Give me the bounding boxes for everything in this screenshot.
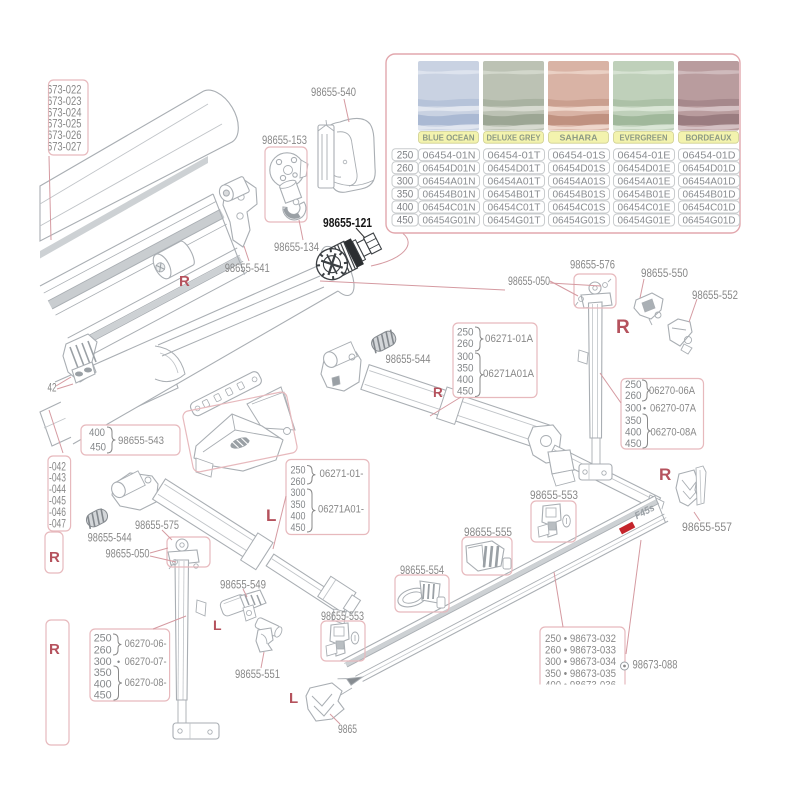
svg-text:450: 450	[457, 386, 474, 398]
svg-text:300 • 98673-034: 300 • 98673-034	[545, 656, 616, 668]
svg-text:260: 260	[397, 162, 414, 174]
svg-text:R: R	[49, 641, 60, 658]
svg-text:98655-550: 98655-550	[641, 266, 688, 280]
svg-text:06271-01-: 06271-01-	[320, 468, 364, 480]
svg-text:98655-553: 98655-553	[530, 488, 578, 502]
svg-text:06454G01E: 06454G01E	[618, 215, 671, 227]
svg-text:06454D01S: 06454D01S	[553, 162, 606, 174]
svg-text:06454D01D: 06454D01D	[683, 162, 736, 174]
svg-text:350: 350	[291, 499, 306, 511]
svg-text:-047: -047	[49, 516, 66, 530]
svg-text:EVERGREEN: EVERGREEN	[620, 133, 668, 143]
svg-text:BORDEAUX: BORDEAUX	[686, 133, 732, 143]
svg-text:98655-543: 98655-543	[118, 435, 164, 447]
svg-text:350: 350	[397, 189, 414, 201]
svg-text:98655-557: 98655-557	[682, 520, 732, 534]
svg-text:R: R	[433, 385, 443, 400]
svg-text:250: 250	[397, 149, 414, 161]
svg-text:260: 260	[291, 476, 306, 488]
svg-text:06454B01T: 06454B01T	[488, 189, 542, 201]
svg-text:98655-553: 98655-553	[321, 609, 364, 623]
svg-text:06454G01N: 06454G01N	[423, 215, 476, 227]
svg-text:•: •	[643, 404, 646, 414]
svg-text:350: 350	[625, 415, 642, 427]
svg-text:450: 450	[90, 442, 106, 454]
svg-text:06454-01N: 06454-01N	[423, 149, 476, 161]
svg-text:98655-050: 98655-050	[106, 547, 150, 561]
svg-text:06454G01S: 06454G01S	[553, 215, 606, 227]
svg-text:98655-549: 98655-549	[220, 578, 266, 592]
svg-text:06454B01N: 06454B01N	[423, 189, 476, 201]
svg-text:350: 350	[94, 667, 112, 679]
svg-text:06454C01T: 06454C01T	[488, 202, 542, 214]
svg-text:350: 350	[457, 363, 474, 375]
svg-text:06270-08-: 06270-08-	[125, 677, 167, 689]
svg-text:06271A01-: 06271A01-	[318, 504, 364, 516]
svg-text:SAHARA: SAHARA	[560, 133, 598, 143]
svg-text:300: 300	[291, 487, 306, 499]
svg-text:98655-575: 98655-575	[135, 518, 179, 532]
svg-text:R: R	[616, 317, 630, 338]
svg-text:450: 450	[94, 690, 112, 702]
svg-text:260: 260	[457, 338, 474, 350]
svg-text:98655-121: 98655-121	[323, 215, 372, 230]
svg-text:450: 450	[397, 215, 414, 227]
svg-text:42: 42	[48, 381, 57, 395]
svg-text:400: 400	[291, 511, 306, 523]
svg-text:06270-07-: 06270-07-	[125, 656, 167, 668]
svg-text:260: 260	[625, 390, 642, 402]
svg-text:9865: 9865	[338, 722, 357, 736]
svg-text:450: 450	[291, 522, 306, 534]
svg-text:06270-06-: 06270-06-	[125, 638, 167, 650]
svg-text:300: 300	[625, 403, 642, 415]
svg-text:350 • 98673-035: 350 • 98673-035	[545, 668, 616, 680]
svg-text:R: R	[179, 273, 190, 290]
svg-text:250: 250	[457, 327, 474, 339]
svg-text:06454A01T: 06454A01T	[488, 176, 542, 188]
svg-text:250: 250	[291, 465, 306, 477]
svg-text:06454B01D: 06454B01D	[683, 189, 736, 201]
svg-text:06454C01N: 06454C01N	[423, 202, 476, 214]
svg-text:06454G01T: 06454G01T	[488, 215, 542, 227]
svg-text:L: L	[213, 617, 222, 633]
svg-text:•: •	[117, 657, 120, 667]
svg-text:98673-088: 98673-088	[633, 658, 678, 672]
svg-text:06271A01A: 06271A01A	[483, 368, 535, 380]
svg-text:400: 400	[457, 374, 474, 386]
svg-text:06454-01S: 06454-01S	[553, 149, 606, 161]
svg-text:06454D01E: 06454D01E	[618, 162, 671, 174]
svg-text:L: L	[289, 690, 298, 707]
svg-text:06454-01T: 06454-01T	[488, 149, 542, 161]
svg-text:06270-08A: 06270-08A	[651, 427, 698, 439]
svg-text:06454A01S: 06454A01S	[553, 176, 606, 188]
svg-text:98655-576: 98655-576	[570, 258, 615, 272]
svg-text:06454A01N: 06454A01N	[423, 176, 476, 188]
svg-text:400: 400	[397, 202, 414, 214]
svg-text:06454A01E: 06454A01E	[618, 176, 671, 188]
svg-text:98655-153: 98655-153	[262, 133, 307, 147]
svg-text:R: R	[49, 549, 60, 566]
svg-text:98655-541: 98655-541	[225, 261, 270, 275]
svg-text:300: 300	[397, 176, 414, 188]
svg-text:06454C01E: 06454C01E	[618, 202, 671, 214]
svg-text:450: 450	[625, 438, 642, 450]
svg-text:400: 400	[89, 427, 105, 439]
svg-text:06454D01T: 06454D01T	[488, 162, 542, 174]
svg-text:98655-050: 98655-050	[508, 274, 550, 288]
svg-text:06454-01D: 06454-01D	[683, 149, 736, 161]
svg-text:260: 260	[94, 645, 112, 657]
svg-text:250: 250	[94, 633, 112, 645]
svg-text:06270-06A: 06270-06A	[649, 385, 696, 397]
svg-text:L: L	[266, 506, 276, 525]
svg-text:260 • 98673-033: 260 • 98673-033	[545, 645, 616, 657]
svg-text:BLUE OCEAN: BLUE OCEAN	[423, 133, 475, 143]
svg-text:06454-01E: 06454-01E	[618, 149, 671, 161]
svg-text:98655-555: 98655-555	[464, 525, 512, 539]
svg-text:98655-552: 98655-552	[692, 288, 738, 302]
svg-text:300: 300	[457, 351, 474, 363]
svg-text:06454C01S: 06454C01S	[553, 202, 606, 214]
svg-text:98655-551: 98655-551	[235, 667, 280, 681]
svg-text:06454A01D: 06454A01D	[683, 176, 736, 188]
svg-text:98655-544: 98655-544	[88, 531, 132, 545]
svg-text:98655-540: 98655-540	[311, 85, 356, 99]
svg-text:06270-07A: 06270-07A	[650, 403, 697, 415]
svg-text:400: 400	[625, 427, 642, 439]
svg-text:250 • 98673-032: 250 • 98673-032	[545, 633, 616, 645]
svg-text:06454D01N: 06454D01N	[423, 162, 476, 174]
svg-text:98655-544: 98655-544	[386, 352, 431, 366]
svg-text:06454C01D: 06454C01D	[683, 202, 736, 214]
svg-text:06454G01D: 06454G01D	[683, 215, 736, 227]
svg-text:06271-01A: 06271-01A	[485, 333, 534, 345]
svg-text:R: R	[659, 465, 671, 484]
svg-text:DELUXE GREY: DELUXE GREY	[487, 133, 541, 143]
svg-text:06454B01S: 06454B01S	[553, 189, 606, 201]
svg-text:98655-554: 98655-554	[400, 563, 444, 577]
svg-text:98655-134: 98655-134	[274, 240, 319, 254]
svg-text:06454B01E: 06454B01E	[618, 189, 671, 201]
